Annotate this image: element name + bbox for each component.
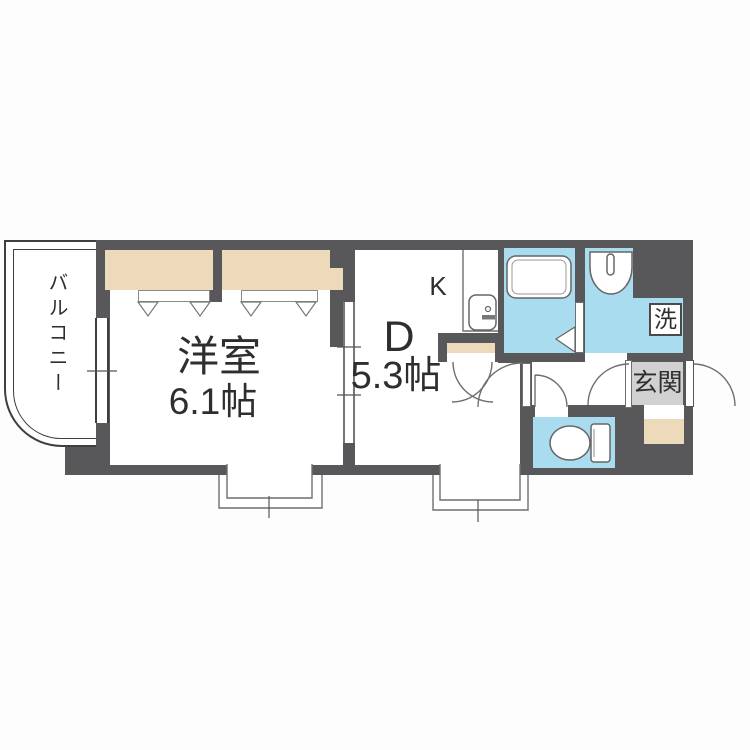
shoe-cabinet	[644, 419, 684, 444]
floor-plan: バルコニー 洗 玄関	[0, 0, 750, 750]
toilet-step	[535, 405, 568, 417]
entrance-label: 玄関	[632, 371, 682, 396]
wall-kitchen-right	[495, 343, 504, 362]
closet-left-track	[138, 290, 210, 302]
dining-letter: D	[349, 316, 449, 359]
dining-size: 5.3帖	[296, 357, 496, 395]
dining-door-leaf	[522, 363, 531, 407]
western-room-size: 6.1帖	[113, 383, 313, 420]
wall-closet-gap	[210, 290, 222, 302]
hallway-floor	[532, 362, 625, 405]
hallway-door-leaf	[625, 360, 632, 408]
washroom-floor-top	[585, 248, 633, 298]
balcony-window	[95, 318, 109, 423]
bathroom-door	[575, 302, 584, 353]
laundry-space: 洗	[649, 303, 682, 336]
washroom-door-opening	[585, 353, 627, 362]
laundry-label: 洗	[654, 308, 677, 331]
closet-right-track	[241, 290, 318, 302]
entrance-tile: 玄関	[632, 362, 683, 405]
closet-left	[105, 250, 213, 290]
western-room-label: 洋室	[119, 336, 319, 378]
kitchen-letter: K	[408, 273, 468, 299]
bathroom-floor	[504, 248, 575, 353]
toilet-floor	[533, 417, 615, 468]
balcony: バルコニー	[4, 240, 96, 447]
dining-floor-extension	[498, 363, 520, 465]
wall-pillar	[330, 290, 343, 347]
kitchen-shelf	[447, 343, 495, 353]
closet-right-step	[330, 268, 343, 290]
entrance-door-leaf	[685, 360, 694, 407]
entrance-step	[644, 405, 684, 419]
balcony-label: バルコニー	[46, 272, 66, 397]
closet-right	[222, 250, 330, 290]
